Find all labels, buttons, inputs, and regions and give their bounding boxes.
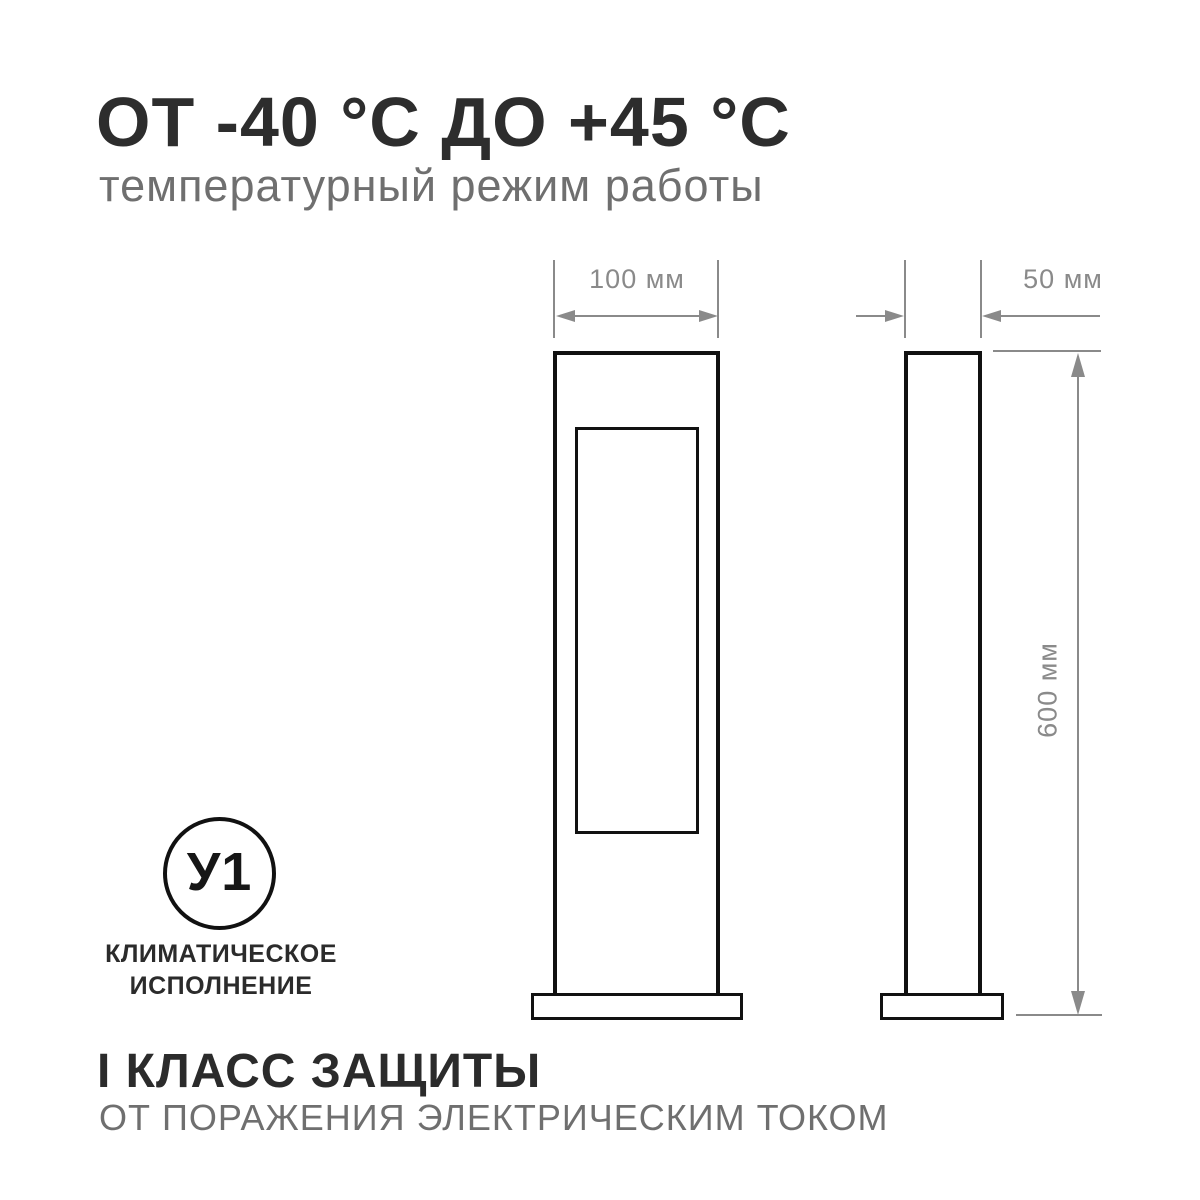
arrow-head-right-icon bbox=[699, 310, 718, 322]
climate-label-line1: КЛИМАТИЧЕСКОЕ bbox=[41, 938, 401, 970]
front-view-light-panel bbox=[575, 427, 699, 834]
side-view-outline bbox=[904, 351, 982, 993]
side-view-base-plate bbox=[880, 993, 1004, 1020]
dimension-line bbox=[856, 315, 888, 317]
climate-label-line2: ИСПОЛНЕНИЕ bbox=[41, 970, 401, 1002]
side-width-extension-line-left bbox=[904, 260, 906, 338]
side-width-label: 50 мм bbox=[1013, 264, 1113, 295]
protection-class-title: I КЛАСС ЗАЩИТЫ bbox=[97, 1044, 541, 1099]
side-width-arrow-left bbox=[856, 310, 904, 322]
climate-badge-code: У1 bbox=[187, 845, 253, 903]
dimension-line bbox=[998, 315, 1100, 317]
height-dimension-arrow bbox=[1071, 353, 1085, 1015]
side-width-arrow-right bbox=[982, 310, 1100, 322]
height-tick-top bbox=[993, 350, 1101, 352]
dimension-line bbox=[1077, 371, 1079, 997]
dimension-line bbox=[572, 315, 702, 317]
front-view-base-plate bbox=[531, 993, 743, 1020]
page-title: ОТ -40 °С ДО +45 °С bbox=[96, 82, 791, 162]
arrow-head-right-icon bbox=[885, 310, 904, 322]
height-tick-bottom bbox=[1016, 1014, 1102, 1016]
climate-badge-label: КЛИМАТИЧЕСКОЕ ИСПОЛНЕНИЕ bbox=[41, 938, 401, 1002]
climate-badge-circle: У1 bbox=[163, 817, 276, 930]
protection-class-subtitle: ОТ ПОРАЖЕНИЯ ЭЛЕКТРИЧЕСКИМ ТОКОМ bbox=[99, 1097, 889, 1139]
front-width-dimension-arrow bbox=[556, 310, 718, 322]
front-width-label: 100 мм bbox=[556, 264, 718, 295]
page-subtitle: температурный режим работы bbox=[99, 160, 764, 212]
side-width-extension-line-right bbox=[980, 260, 982, 338]
arrow-head-down-icon bbox=[1071, 991, 1085, 1015]
height-label: 600 мм bbox=[1033, 642, 1064, 738]
front-width-extension-line-left bbox=[553, 260, 555, 338]
